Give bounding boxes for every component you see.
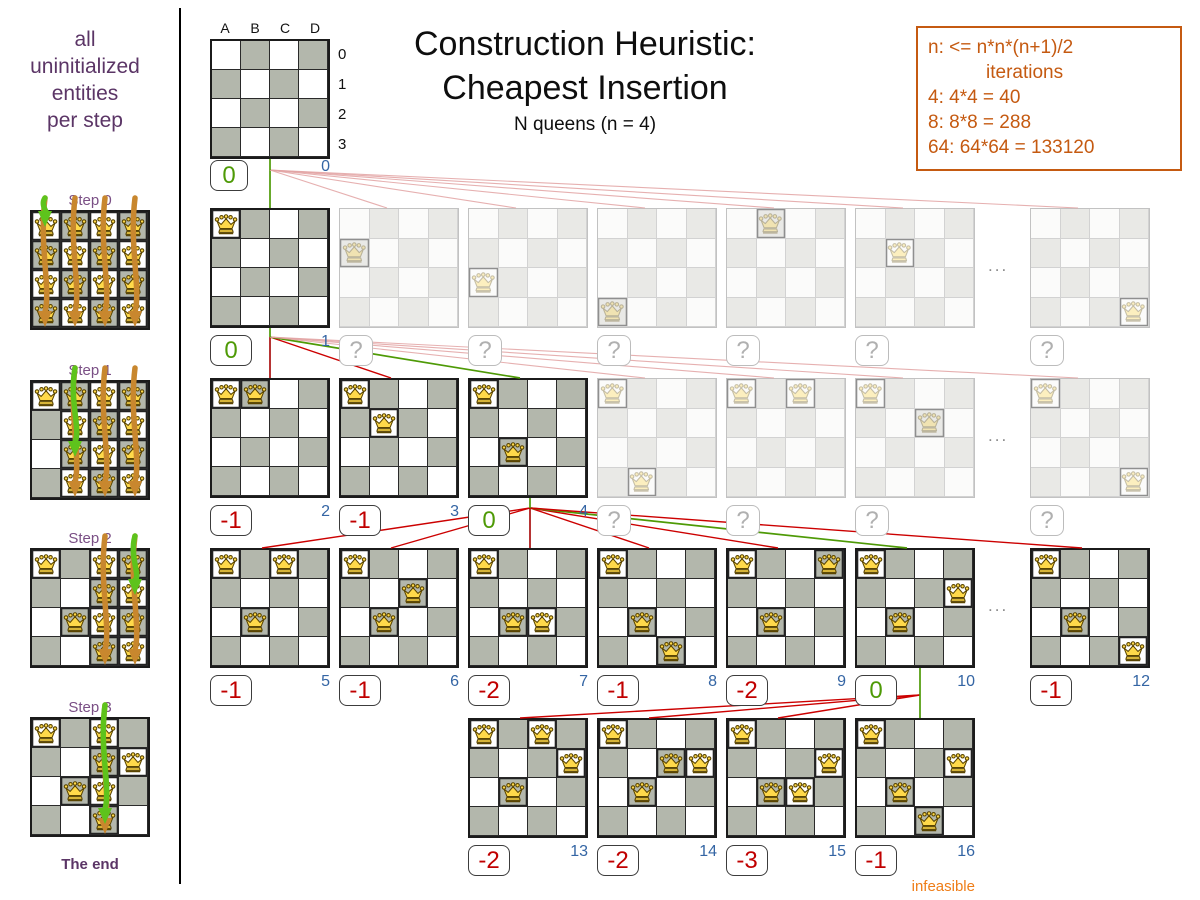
tree-board-iter-9 — [726, 548, 846, 668]
board-cell — [299, 438, 328, 467]
tree-board-candidate-A1 — [339, 208, 459, 328]
board-cell — [241, 380, 270, 409]
board-cell — [628, 550, 657, 579]
queen-icon — [859, 552, 883, 576]
board-cell — [241, 210, 270, 239]
board-cell — [299, 637, 328, 666]
queen-icon — [92, 214, 116, 238]
score-badge: -1 — [1030, 675, 1072, 706]
board-cell — [915, 749, 944, 778]
title-line-2: Cheapest Insertion — [345, 66, 825, 110]
queen-icon — [887, 240, 912, 265]
board-cell — [499, 409, 528, 438]
board-cell — [399, 380, 428, 409]
column-label: D — [300, 20, 330, 36]
board-cell — [61, 719, 90, 748]
score-badge: -3 — [726, 845, 768, 876]
board-cell — [270, 268, 299, 297]
queen-icon — [121, 639, 145, 663]
board-cell — [428, 438, 457, 467]
queen-icon — [34, 214, 58, 238]
board-cell — [686, 608, 715, 637]
board-cell — [1031, 468, 1061, 498]
board-cell — [687, 438, 717, 468]
tree-edge — [270, 170, 1078, 208]
score-badge: -1 — [210, 675, 252, 706]
tree-board-iter-4 — [468, 378, 588, 498]
board-cell — [687, 468, 717, 498]
tree-board-iter-13 — [468, 718, 588, 838]
queen-icon — [472, 382, 496, 406]
tree-board-iter-5 — [210, 548, 330, 668]
board-cell — [1031, 298, 1061, 328]
board-cell — [1120, 379, 1150, 409]
row-label: 1 — [338, 76, 346, 93]
board-cell — [915, 239, 945, 269]
board-cell — [212, 380, 241, 409]
score-badge: ? — [597, 505, 631, 536]
board-cell — [886, 778, 915, 807]
title-line-1: Construction Heuristic: — [345, 22, 825, 66]
board-cell — [944, 550, 973, 579]
board-cell — [886, 749, 915, 778]
board-cell — [915, 438, 945, 468]
tree-edge — [270, 170, 903, 208]
board-cell — [32, 241, 61, 270]
queen-icon — [501, 780, 525, 804]
board-cell — [558, 268, 588, 298]
board-cell — [212, 41, 241, 70]
board-cell — [1090, 209, 1120, 239]
board-cell — [1032, 579, 1061, 608]
board-cell — [599, 550, 628, 579]
board-cell — [528, 380, 557, 409]
board-cell — [557, 608, 586, 637]
queen-icon — [63, 243, 87, 267]
board-cell — [727, 268, 757, 298]
board-cell — [687, 379, 717, 409]
queen-icon — [817, 751, 841, 775]
board-cell — [945, 438, 975, 468]
board-cell — [816, 379, 846, 409]
board-cell — [1119, 579, 1148, 608]
score-badge: 0 — [855, 675, 897, 706]
board-cell — [1061, 468, 1091, 498]
tree-board-candidate-B0 — [726, 208, 846, 328]
board-cell — [399, 209, 429, 239]
queen-icon — [214, 552, 238, 576]
score-badge: -1 — [597, 675, 639, 706]
board-cell — [886, 298, 916, 328]
board-cell — [786, 550, 815, 579]
board-cell — [757, 438, 787, 468]
board-cell — [470, 749, 499, 778]
board-cell — [687, 268, 717, 298]
board-cell — [915, 409, 945, 439]
tree-board-candidate-A2 — [468, 208, 588, 328]
board-cell — [61, 299, 90, 328]
board-cell — [886, 379, 916, 409]
board-cell — [857, 720, 886, 749]
iteration-number: 15 — [796, 843, 846, 861]
board-cell — [341, 409, 370, 438]
queen-icon — [92, 808, 116, 832]
board-cell — [728, 579, 757, 608]
board-cell — [341, 467, 370, 496]
board-cell — [686, 720, 715, 749]
board-cell — [856, 209, 886, 239]
board-cell — [119, 270, 148, 299]
board-cell — [212, 239, 241, 268]
board-cell — [686, 749, 715, 778]
board-cell — [728, 778, 757, 807]
board-cell — [728, 637, 757, 666]
board-cell — [428, 467, 457, 496]
board-cell — [469, 209, 499, 239]
board-cell — [915, 468, 945, 498]
board-cell — [628, 409, 658, 439]
score-badge: ? — [339, 335, 373, 366]
board-cell — [470, 778, 499, 807]
board-cell — [299, 128, 328, 157]
board-cell — [815, 579, 844, 608]
queen-icon — [472, 552, 496, 576]
board-cell — [1090, 379, 1120, 409]
board-cell — [32, 719, 61, 748]
board-cell — [212, 70, 241, 99]
iterations-note-box: n: <= n*n*(n+1)/2iterations4: 4*4 = 408:… — [916, 26, 1182, 171]
queen-icon — [1121, 469, 1146, 494]
board-cell — [657, 637, 686, 666]
board-cell — [370, 608, 399, 637]
score-badge: -1 — [339, 675, 381, 706]
queen-icon — [530, 722, 554, 746]
board-cell — [270, 210, 299, 239]
queen-icon — [92, 301, 116, 325]
tree-edge — [270, 170, 774, 208]
board-cell — [241, 637, 270, 666]
board-cell — [686, 579, 715, 608]
board-cell — [428, 608, 457, 637]
board-cell — [757, 409, 787, 439]
board-cell — [786, 239, 816, 269]
tree-edge — [778, 695, 920, 718]
board-cell — [728, 720, 757, 749]
board-cell — [270, 128, 299, 157]
board-cell — [915, 579, 944, 608]
board-cell — [90, 469, 119, 498]
board-cell — [270, 380, 299, 409]
board-cell — [1032, 637, 1061, 666]
board-cell — [119, 469, 148, 498]
board-cell — [944, 720, 973, 749]
board-cell — [857, 608, 886, 637]
queen-icon — [214, 212, 238, 236]
root-board — [210, 39, 330, 159]
queen-icon — [243, 382, 267, 406]
board-cell — [212, 608, 241, 637]
board-cell — [944, 749, 973, 778]
column-label: A — [210, 20, 240, 36]
board-cell — [1119, 550, 1148, 579]
board-cell — [469, 239, 499, 269]
board-cell — [687, 298, 717, 328]
board-cell — [299, 239, 328, 268]
queen-icon — [729, 381, 754, 406]
board-cell — [32, 608, 61, 637]
board-cell — [657, 379, 687, 409]
board-cell — [61, 440, 90, 469]
queen-icon — [342, 240, 367, 265]
board-cell — [945, 209, 975, 239]
board-cell — [212, 467, 241, 496]
board-cell — [241, 550, 270, 579]
board-cell — [628, 778, 657, 807]
board-cell — [944, 778, 973, 807]
board-cell — [499, 749, 528, 778]
board-cell — [856, 379, 886, 409]
queen-icon — [472, 722, 496, 746]
board-cell — [657, 720, 686, 749]
board-cell — [915, 209, 945, 239]
board-cell — [340, 268, 370, 298]
board-cell — [469, 298, 499, 328]
queen-icon — [34, 243, 58, 267]
queen-icon — [92, 413, 116, 437]
tree-board-iter-12 — [1030, 548, 1150, 668]
board-cell — [528, 268, 558, 298]
queen-icon — [471, 270, 496, 295]
board-cell — [399, 239, 429, 269]
board-cell — [299, 608, 328, 637]
board-cell — [557, 637, 586, 666]
tree-board-candidate-A0C0 — [726, 378, 846, 498]
iteration-number: 1 — [280, 333, 330, 351]
board-cell — [786, 268, 816, 298]
score-badge: 0 — [210, 160, 248, 191]
board-cell — [657, 550, 686, 579]
queen-icon — [888, 780, 912, 804]
board-cell — [1032, 608, 1061, 637]
board-cell — [915, 807, 944, 836]
board-cell — [61, 608, 90, 637]
board-cell — [1031, 239, 1061, 269]
queen-icon — [63, 272, 87, 296]
board-cell — [429, 209, 459, 239]
board-cell — [599, 749, 628, 778]
board-cell — [1061, 239, 1091, 269]
board-cell — [557, 720, 586, 749]
board-cell — [786, 438, 816, 468]
board-cell — [119, 806, 148, 835]
board-cell — [1061, 268, 1091, 298]
board-cell — [499, 298, 529, 328]
board-cell — [90, 579, 119, 608]
queen-icon — [63, 214, 87, 238]
board-cell — [944, 608, 973, 637]
board-cell — [212, 579, 241, 608]
queen-icon — [730, 722, 754, 746]
board-cell — [558, 209, 588, 239]
board-cell — [61, 469, 90, 498]
board-cell — [270, 409, 299, 438]
board-cell — [786, 637, 815, 666]
board-cell — [1090, 438, 1120, 468]
board-cell — [428, 550, 457, 579]
tree-board-iter-7 — [468, 548, 588, 668]
board-cell — [370, 438, 399, 467]
board-cell — [212, 637, 241, 666]
queen-icon — [63, 301, 87, 325]
board-cell — [786, 579, 815, 608]
queen-icon — [63, 384, 87, 408]
board-cell — [32, 806, 61, 835]
queen-icon — [92, 272, 116, 296]
note-box-line: 8: 8*8 = 288 — [928, 110, 1170, 135]
iteration-number: 9 — [796, 673, 846, 691]
board-cell — [598, 468, 628, 498]
board-cell — [528, 409, 557, 438]
score-badge: ? — [468, 335, 502, 366]
board-cell — [1031, 438, 1061, 468]
board-cell — [1061, 608, 1090, 637]
queen-icon — [121, 581, 145, 605]
board-cell — [886, 409, 916, 439]
board-cell — [90, 608, 119, 637]
board-cell — [628, 438, 658, 468]
queen-icon — [92, 610, 116, 634]
board-cell — [241, 70, 270, 99]
step-board-3 — [30, 717, 150, 837]
board-cell — [945, 409, 975, 439]
board-cell — [657, 298, 687, 328]
board-cell — [340, 209, 370, 239]
board-cell — [728, 807, 757, 836]
tree-board-iter-16 — [855, 718, 975, 838]
queen-icon — [121, 413, 145, 437]
board-cell — [90, 411, 119, 440]
board-cell — [499, 608, 528, 637]
board-cell — [499, 637, 528, 666]
queen-icon — [34, 552, 58, 576]
queen-icon — [629, 469, 654, 494]
queen-icon — [372, 610, 396, 634]
board-cell — [241, 297, 270, 326]
board-cell — [628, 298, 658, 328]
board-cell — [815, 637, 844, 666]
board-cell — [657, 268, 687, 298]
score-badge: -1 — [339, 505, 381, 536]
board-cell — [212, 297, 241, 326]
board-cell — [727, 239, 757, 269]
row-label: 3 — [338, 136, 346, 153]
board-cell — [1090, 268, 1120, 298]
board-cell — [270, 70, 299, 99]
board-cell — [32, 411, 61, 440]
score-badge: ? — [855, 335, 889, 366]
queen-icon — [92, 721, 116, 745]
board-cell — [212, 268, 241, 297]
board-cell — [528, 608, 557, 637]
queen-icon — [121, 750, 145, 774]
board-cell — [470, 467, 499, 496]
board-cell — [61, 241, 90, 270]
step-board-2 — [30, 548, 150, 668]
board-cell — [856, 268, 886, 298]
queen-icon — [214, 382, 238, 406]
board-cell — [886, 268, 916, 298]
board-cell — [728, 749, 757, 778]
board-cell — [241, 268, 270, 297]
board-cell — [1090, 298, 1120, 328]
board-cell — [599, 807, 628, 836]
step-label: Step 0 — [30, 192, 150, 209]
board-cell — [299, 210, 328, 239]
board-cell — [528, 298, 558, 328]
queen-icon — [917, 410, 942, 435]
board-cell — [857, 579, 886, 608]
queen-icon — [92, 384, 116, 408]
board-cell — [628, 807, 657, 836]
board-cell — [816, 268, 846, 298]
queen-icon — [92, 639, 116, 663]
board-cell — [915, 720, 944, 749]
board-cell — [241, 608, 270, 637]
queen-icon — [659, 639, 683, 663]
diagram-canvas: alluninitializedentitiesper step The end… — [0, 0, 1200, 900]
board-cell — [628, 239, 658, 269]
board-cell — [299, 99, 328, 128]
board-cell — [32, 270, 61, 299]
board-cell — [815, 608, 844, 637]
board-cell — [886, 608, 915, 637]
board-cell — [32, 777, 61, 806]
board-cell — [470, 438, 499, 467]
board-cell — [657, 778, 686, 807]
board-cell — [470, 579, 499, 608]
board-cell — [119, 411, 148, 440]
board-cell — [270, 41, 299, 70]
board-cell — [628, 209, 658, 239]
tree-board-candidate-A0C1 — [855, 378, 975, 498]
board-cell — [757, 637, 786, 666]
board-cell — [32, 579, 61, 608]
iteration-number: 3 — [409, 503, 459, 521]
board-cell — [944, 637, 973, 666]
iteration-number: 10 — [925, 673, 975, 691]
tree-board-candidate-A0D3 — [1030, 378, 1150, 498]
board-cell — [1061, 550, 1090, 579]
board-cell — [90, 382, 119, 411]
board-cell — [945, 379, 975, 409]
board-cell — [727, 209, 757, 239]
board-cell — [856, 468, 886, 498]
queen-icon — [372, 411, 396, 435]
board-cell — [857, 637, 886, 666]
board-cell — [528, 778, 557, 807]
queen-icon — [63, 610, 87, 634]
board-cell — [528, 637, 557, 666]
board-cell — [557, 579, 586, 608]
board-cell — [915, 637, 944, 666]
iteration-number: 5 — [280, 673, 330, 691]
board-cell — [1031, 409, 1061, 439]
board-cell — [341, 438, 370, 467]
board-cell — [528, 239, 558, 269]
board-cell — [61, 579, 90, 608]
board-cell — [61, 270, 90, 299]
queen-icon — [63, 442, 87, 466]
